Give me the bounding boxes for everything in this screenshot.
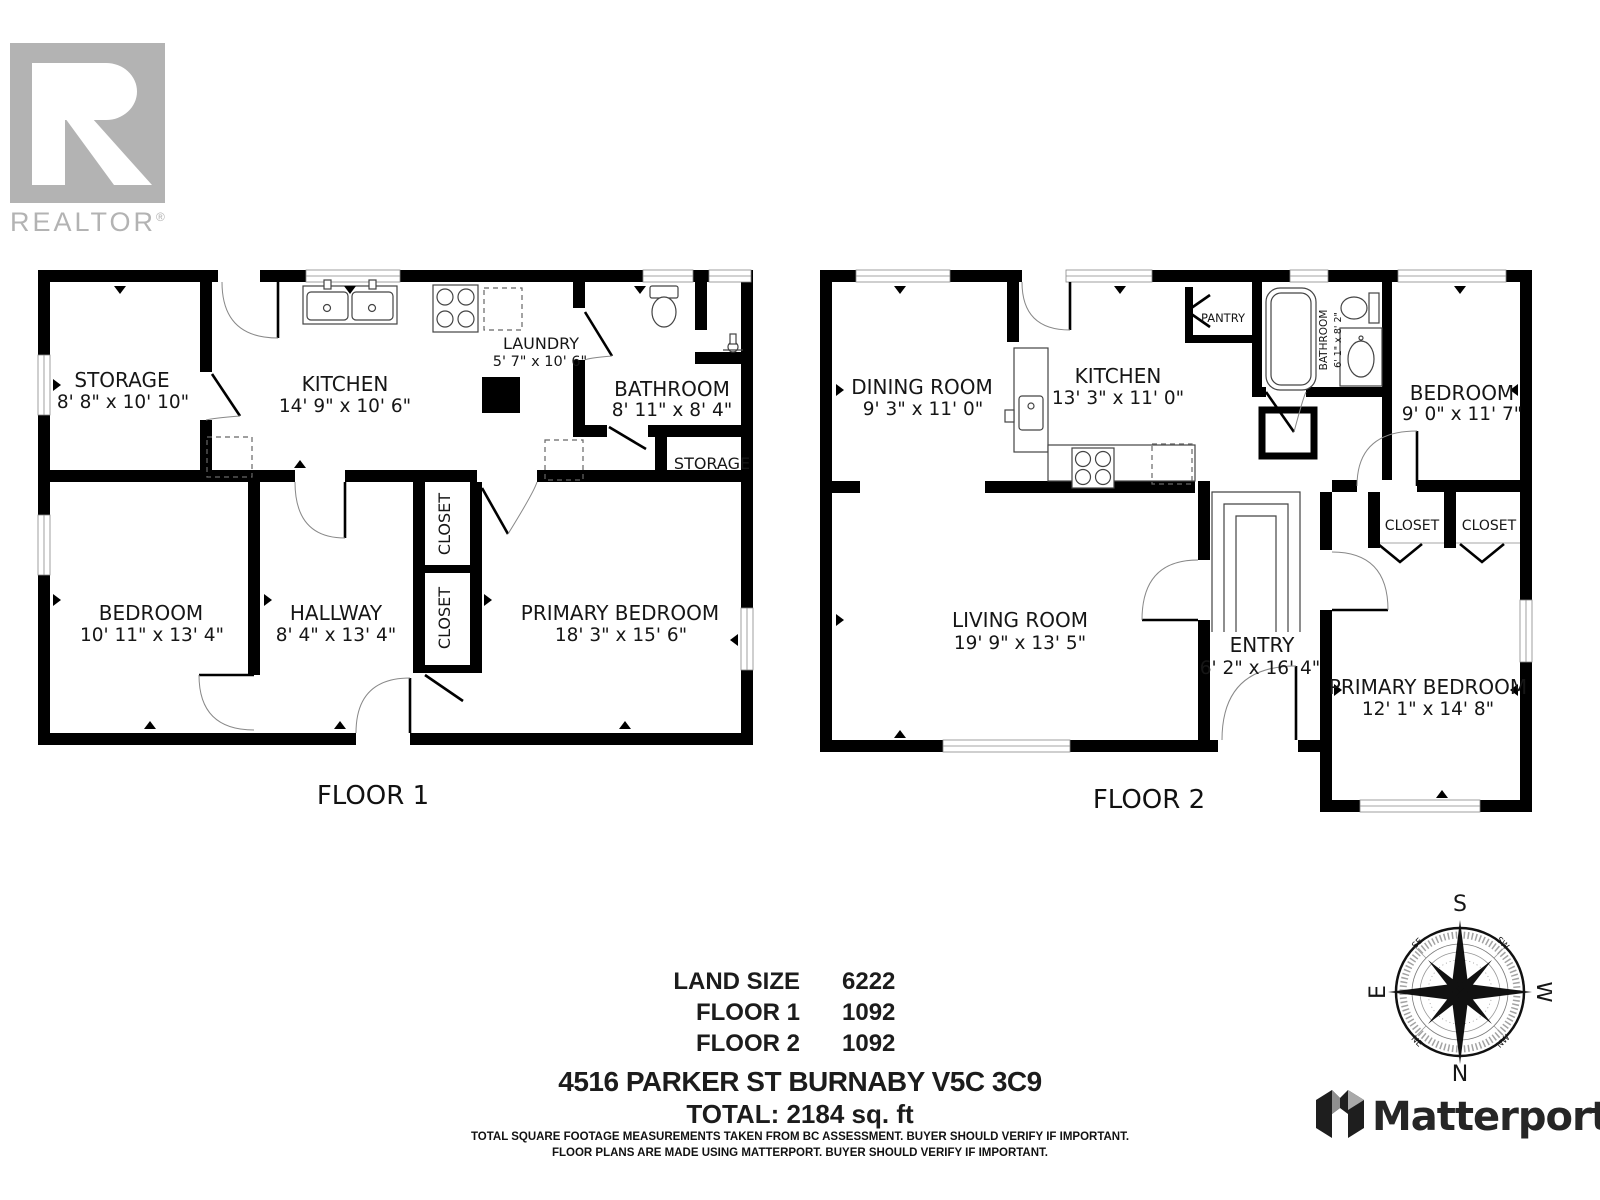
property-address: 4516 PARKER ST BURNABY V5C 3C9 xyxy=(400,1066,1200,1098)
floor2-bathroom-dims: 6' 1" x 8' 2" xyxy=(1333,312,1344,368)
matterport-wordmark: Matterport xyxy=(1372,1094,1600,1140)
compass-west-label: W xyxy=(1531,981,1552,1003)
floor1-hallway-dims: 8' 4" x 13' 4" xyxy=(276,625,397,646)
compass-rose: S N E W SE SW NE NW xyxy=(1368,885,1552,1085)
linen-closet xyxy=(1262,410,1314,456)
floor2-primary-bedroom-dims: 12' 1" x 14' 8" xyxy=(1362,699,1494,720)
floor1-area-value: 1092 xyxy=(842,997,895,1028)
land-size-label: LAND SIZE xyxy=(560,966,800,997)
floor2-closet1-label: CLOSET xyxy=(1385,518,1440,534)
floor1-closet2-label: CLOSET xyxy=(435,587,454,649)
floor1-bathroom-dims: 8' 11" x 8' 4" xyxy=(612,400,733,421)
floor2-kitchen-dims: 13' 3" x 11' 0" xyxy=(1052,388,1184,409)
summary-row-floor1: FLOOR 1 1092 xyxy=(560,997,1040,1028)
floor-plans-drawing: STORAGE 8' 8" x 10' 10" KITCHEN 14' 9" x… xyxy=(0,0,1600,860)
floor2-bathroom-label: BATHROOM xyxy=(1318,310,1330,371)
floor2-dining-room-label: DINING ROOM xyxy=(851,375,993,399)
toilet xyxy=(1369,293,1379,323)
floor1-closet1-label: CLOSET xyxy=(435,493,454,555)
floor2-entry-label: ENTRY xyxy=(1230,633,1295,657)
floor1-primary-bedroom-dims: 18' 3" x 15' 6" xyxy=(555,625,687,646)
floor2-dining-room-dims: 9' 3" x 11' 0" xyxy=(863,399,984,420)
summary-row-land-size: LAND SIZE 6222 xyxy=(560,966,1040,997)
floor1-area-label: FLOOR 1 xyxy=(560,997,800,1028)
floor1-plan: STORAGE 8' 8" x 10' 10" KITCHEN 14' 9" x… xyxy=(38,270,753,745)
floor2-pantry-label: PANTRY xyxy=(1201,311,1246,325)
floor1-primary-bedroom-label: PRIMARY BEDROOM xyxy=(521,601,719,625)
compass-star xyxy=(1388,920,1532,1064)
summary-row-floor2: FLOOR 2 1092 xyxy=(560,1028,1040,1059)
stove xyxy=(1072,448,1114,488)
floor2-closet2-label: CLOSET xyxy=(1462,518,1517,534)
compass-north-label: N xyxy=(1452,1062,1468,1085)
floor1-caption: FLOOR 1 xyxy=(273,781,473,811)
floor1-markers xyxy=(53,286,738,729)
toilet xyxy=(650,286,678,298)
floor2-bedroom-label: BEDROOM xyxy=(1410,381,1514,405)
floor2-living-room-dims: 19' 9" x 13' 5" xyxy=(954,633,1086,654)
floor1-kitchen-label: KITCHEN xyxy=(302,372,389,396)
staircase xyxy=(1212,492,1300,632)
floor2-walls xyxy=(832,282,1532,740)
summary-table: LAND SIZE 6222 FLOOR 1 1092 FLOOR 2 1092 xyxy=(560,966,1040,1059)
floor1-kitchen-dims: 14' 9" x 10' 6" xyxy=(279,396,411,417)
floor1-laundry-dims: 5' 7" x 10' 6" xyxy=(493,354,587,370)
compass-east-label: E xyxy=(1368,985,1391,999)
floor2-area-value: 1092 xyxy=(842,1028,895,1059)
matterport-icon xyxy=(1316,1088,1364,1140)
floor1-storage-label: STORAGE xyxy=(74,368,169,392)
laundry-appliance xyxy=(482,377,520,413)
floor2-bedroom-dims: 9' 0" x 11' 7" xyxy=(1402,404,1523,425)
floor2-plan: DINING ROOM 9' 3" x 11' 0" KITCHEN 13' 3… xyxy=(820,270,1532,812)
floor1-bedroom-dims: 10' 11" x 13' 4" xyxy=(80,625,224,646)
compass-south-label: S xyxy=(1453,892,1467,917)
floor1-laundry-label: LAUNDRY xyxy=(503,334,579,353)
floorplan-sheet: REALTOR® xyxy=(0,0,1600,1200)
floor2-area-label: FLOOR 2 xyxy=(560,1028,800,1059)
disclaimer-line2: FLOOR PLANS ARE MADE USING MATTERPORT. B… xyxy=(400,1147,1200,1159)
floor1-hallway-label: HALLWAY xyxy=(290,601,383,625)
disclaimer-line1: TOTAL SQUARE FOOTAGE MEASUREMENTS TAKEN … xyxy=(400,1131,1200,1143)
land-size-value: 6222 xyxy=(842,966,895,997)
floor1-storage-dims: 8' 8" x 10' 10" xyxy=(57,392,189,413)
floor1-storage2-label: STORAGE xyxy=(674,454,750,473)
compass-northeast-label: NE xyxy=(1409,1034,1424,1049)
floor1-bathroom-label: BATHROOM xyxy=(614,377,730,401)
total-area: TOTAL: 2184 sq. ft xyxy=(400,1099,1200,1130)
floor1-bedroom-label: BEDROOM xyxy=(99,601,203,625)
floor2-kitchen-label: KITCHEN xyxy=(1075,364,1162,388)
floor2-markers xyxy=(836,286,1518,798)
bathtub xyxy=(1266,288,1316,390)
floor2-primary-bedroom-label: PRIMARY BEDROOM xyxy=(1329,675,1527,699)
floor2-entry-dims: 6' 2" x 16' 4" xyxy=(1200,658,1321,679)
floor2-caption: FLOOR 2 xyxy=(1049,785,1249,815)
floor2-living-room-label: LIVING ROOM xyxy=(952,608,1088,632)
